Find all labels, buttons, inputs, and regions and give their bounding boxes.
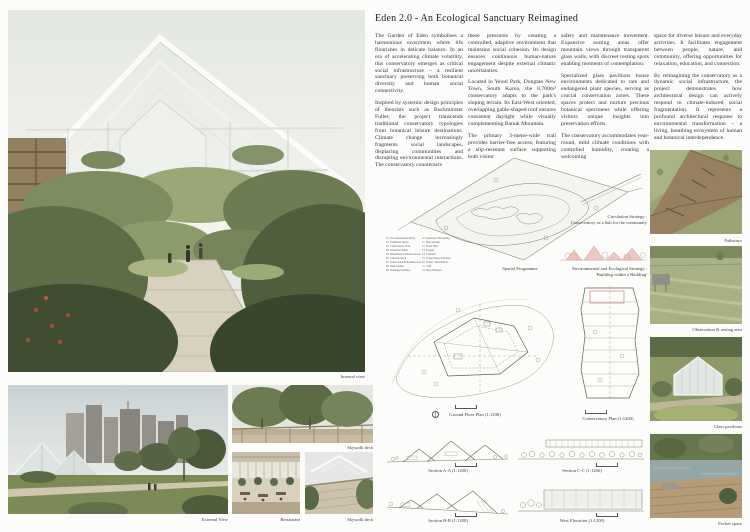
scale-bar — [455, 513, 477, 517]
section-aa-drawing — [385, 436, 511, 466]
pocket-space-photo — [650, 434, 742, 518]
section-cc-drawing — [516, 436, 646, 466]
caption-circulation-strategy: Circulation Strategy : Conservatory as a… — [545, 214, 647, 225]
caption-west-elevation: West Elevation (1:1200) — [522, 518, 642, 524]
caption-glass-pavilions: Glass pavilions — [642, 424, 742, 430]
scale-bar — [455, 463, 477, 467]
essay-paragraph: safety and maintenance movement. Expansi… — [561, 33, 649, 68]
essay-paragraph: The Garden of Eden symbolises a harmonio… — [375, 33, 463, 95]
skywalk-deck-photo-upper — [232, 385, 373, 443]
scale-bar — [596, 513, 618, 517]
page-title: Eden 2.0 - An Ecological Sanctuary Reima… — [375, 13, 745, 24]
scale-bar — [585, 410, 607, 414]
essay-paragraph: Specialized glass pavilions house enviro… — [561, 73, 649, 128]
presentation-board: Internal view Eden 2.0 - An Ecological S… — [0, 0, 750, 532]
caption-section-aa: Section A-A (1:1200) — [390, 468, 506, 474]
caption-section-cc: Section C-C (1:1200) — [522, 468, 642, 474]
caption-pathways: Pathways — [642, 238, 742, 244]
conservatory-plan-drawing — [570, 282, 648, 404]
section-bb-drawing — [385, 487, 511, 517]
essay-column-4: space for diverse leisure and everyday a… — [654, 33, 742, 147]
essay-column-3: safety and maintenance movement. Expansi… — [561, 33, 649, 165]
essay-paragraph: these pressures by creating a controlled… — [468, 33, 556, 74]
observation-area-photo — [650, 246, 742, 324]
caption-ground-floor-plan: Ground Floor Plan (1:1200) — [400, 412, 550, 418]
restaurant-photo — [232, 452, 300, 514]
scale-bar — [455, 405, 477, 409]
hero-internal-render-image — [8, 10, 365, 372]
scale-bar — [596, 463, 618, 467]
circulation-strategy-diagram — [558, 232, 648, 264]
glass-pavilions-photo — [650, 337, 742, 421]
conservatory-interior-illustration — [8, 10, 365, 372]
pathways-photo — [650, 150, 742, 234]
essay-paragraph: By reimagining the conservatory as a dyn… — [654, 73, 742, 142]
caption-pocket-space: Pocket space — [642, 521, 742, 527]
caption-internal-view: Internal view — [265, 374, 365, 380]
essay-column-2: these pressures by creating a controlled… — [468, 33, 556, 165]
caption-environmental-strategy: Environmental and Ecological Strategy : … — [545, 266, 647, 277]
skywalk-deck-photo-lower — [305, 452, 373, 514]
external-view-photo — [8, 385, 228, 514]
caption-section-bb: Section B-B (1:1200) — [390, 518, 506, 524]
caption-observation-area: Observation & resting area — [642, 327, 742, 333]
caption-skywalk-deck-upper: Skywalk deck — [273, 445, 373, 451]
essay-paragraph: Located in Yeoul Park, Dongtan New Town,… — [468, 79, 556, 127]
caption-skywalk-deck-lower: Skywalk deck — [273, 517, 373, 523]
ground-floor-plan-drawing — [388, 280, 560, 406]
essay-paragraph: space for diverse leisure and everyday a… — [654, 33, 742, 68]
west-elevation-drawing — [516, 487, 646, 517]
